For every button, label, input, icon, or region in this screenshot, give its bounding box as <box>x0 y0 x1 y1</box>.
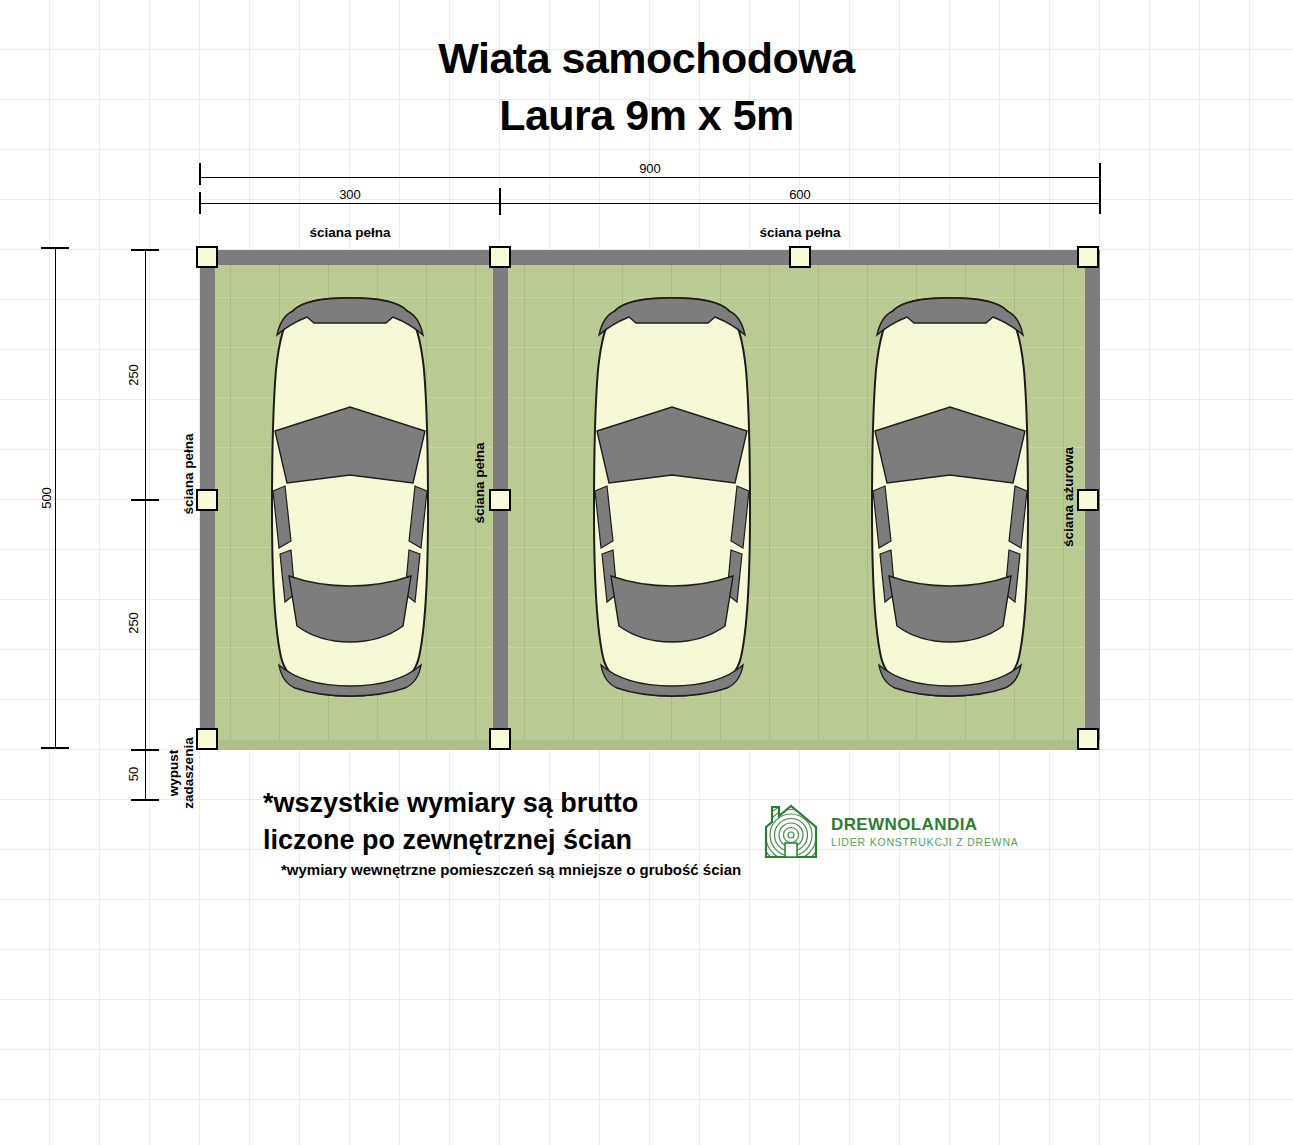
dim-bay-widths-line <box>200 203 1100 204</box>
post-top-midspan <box>789 246 811 268</box>
logo-text: DREWNOLANDIA LIDER KONSTRUKCJI Z DREWNA <box>831 815 1019 848</box>
logo-name: DREWNOLANDIA <box>831 815 1019 834</box>
overhang-label: wypust zadaszenia <box>166 737 196 808</box>
overhang-label-line1: wypust <box>166 737 181 808</box>
car-top-view-3 <box>867 295 1033 701</box>
post-top-middle <box>489 246 511 268</box>
roof-edge-strip <box>200 740 1100 750</box>
dim-bay2-label: 600 <box>500 187 1100 202</box>
wall-label-top-left-bay: ściana pełna <box>200 225 500 240</box>
dim-rear-depth-label: 250 <box>126 612 141 634</box>
dim-overhang-label: 50 <box>126 767 141 781</box>
post-mid-right <box>1077 489 1099 511</box>
dim-bay1-label: 300 <box>200 187 500 202</box>
wall-label-right: ściana ażurowa <box>1061 447 1076 547</box>
carport-plan-canvas: { "title": { "line1": "Wiata samochodowa… <box>0 0 1293 1145</box>
dim-tick <box>131 749 159 751</box>
dim-total-width-line <box>200 177 1100 178</box>
dim-tick <box>41 747 69 749</box>
dim-tick <box>41 247 69 249</box>
title-line1: Wiata samochodowa <box>0 30 1293 87</box>
wall-label-top-right-bay: ściana pełna <box>500 225 1100 240</box>
note-line1: *wszystkie wymiary są brutto <box>263 788 638 819</box>
wall-top <box>200 250 1100 265</box>
dim-total-width-label: 900 <box>200 161 1100 176</box>
post-mid-middle <box>489 489 511 511</box>
post-top-left <box>196 246 218 268</box>
title-line2: Laura 9m x 5m <box>0 87 1293 144</box>
dim-tick <box>131 249 159 251</box>
logo: DREWNOLANDIA LIDER KONSTRUKCJI Z DREWNA <box>762 799 1019 863</box>
post-bottom-middle <box>489 728 511 750</box>
overhang-label-line2: zadaszenia <box>181 737 196 808</box>
post-bottom-left <box>196 728 218 750</box>
post-top-right <box>1077 246 1099 268</box>
dim-tick <box>131 799 159 801</box>
dim-total-depth-line <box>55 248 56 748</box>
logo-house-icon <box>762 799 820 863</box>
wall-label-middle: ściana pełna <box>472 442 487 523</box>
post-bottom-right <box>1077 728 1099 750</box>
wall-label-left: ściana pełna <box>181 433 196 514</box>
dim-depth-segments-line <box>145 250 146 800</box>
car-top-view-1 <box>267 295 433 701</box>
drawing-title: Wiata samochodowa Laura 9m x 5m <box>0 30 1293 144</box>
note-line3: *wymiary wewnętrzne pomieszczeń są mniej… <box>281 861 741 878</box>
dim-tick <box>131 499 159 501</box>
note-line2: liczone po zewnętrznej ścian <box>263 825 632 856</box>
dim-front-depth-label: 250 <box>126 364 141 386</box>
dim-total-depth-label: 500 <box>39 487 54 509</box>
car-top-view-2 <box>589 295 755 701</box>
post-mid-left <box>196 489 218 511</box>
logo-tagline: LIDER KONSTRUKCJI Z DREWNA <box>831 836 1019 848</box>
